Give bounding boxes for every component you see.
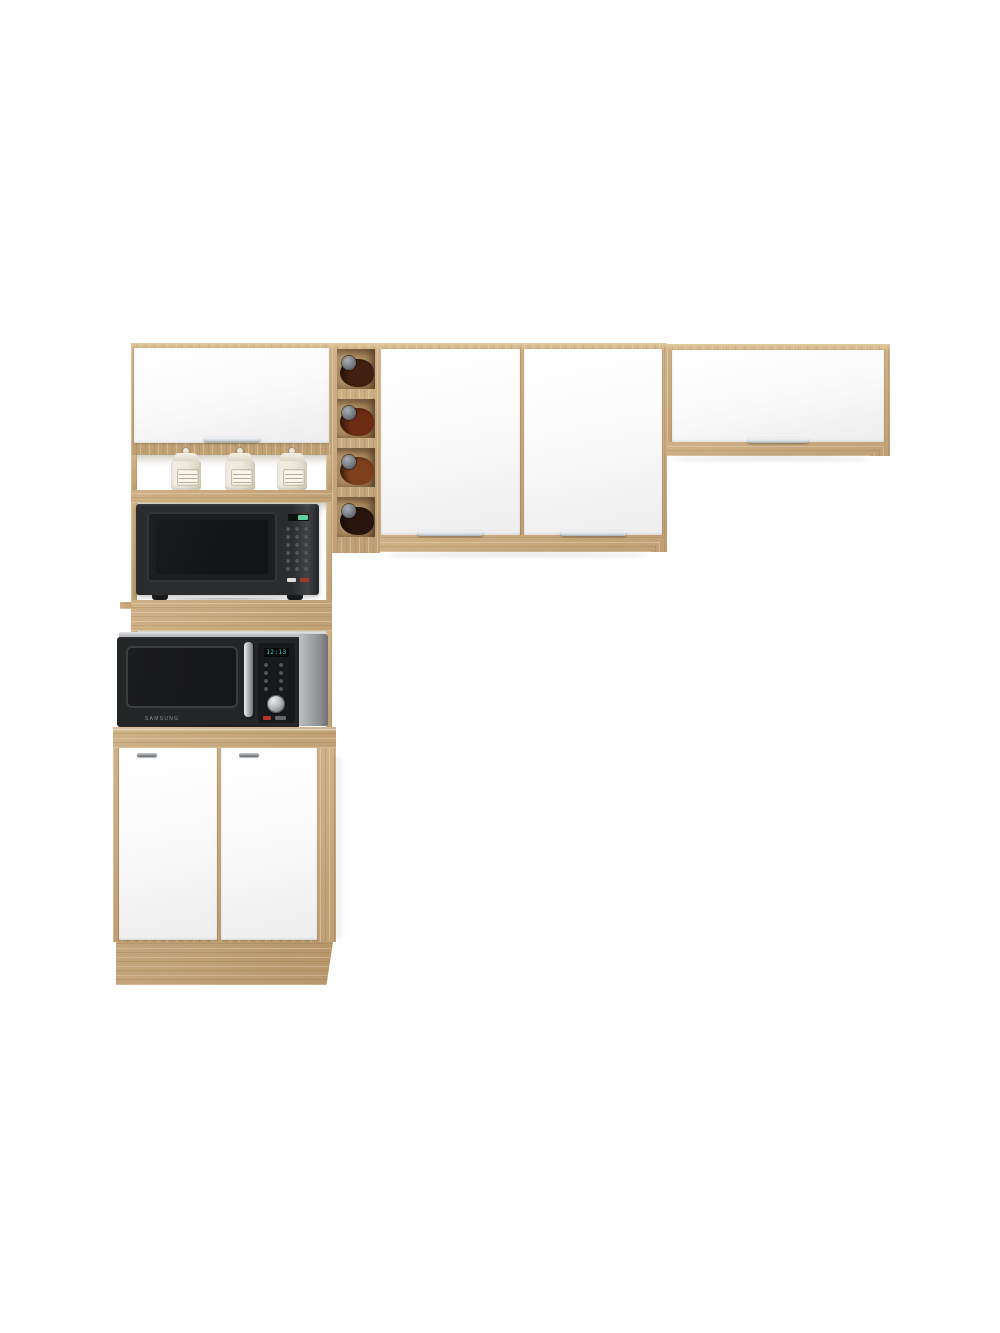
- stop-button: [263, 716, 271, 720]
- center-cabinet-door-right: [524, 349, 662, 535]
- microwave-lower-knob: [267, 695, 285, 713]
- wine-cubby: [337, 399, 375, 438]
- microwave-upper-body: [136, 504, 319, 595]
- bottle-cap: [342, 356, 356, 370]
- base-cabinet-countertop: [113, 727, 336, 748]
- base-cabinet-door-left: [119, 748, 217, 940]
- shelf-side-panel: [131, 455, 137, 490]
- door-handle: [204, 437, 260, 442]
- base-cabinet: [113, 748, 336, 942]
- door-handle: [561, 531, 626, 536]
- microwave-upper-display: [288, 514, 309, 521]
- canister-label: [177, 469, 199, 486]
- microwave-lower-buttons: [262, 662, 291, 692]
- microwave-lower-window: [126, 646, 238, 708]
- base-plinth: [116, 942, 333, 985]
- canister-shelf: [131, 490, 332, 503]
- shelf-band: [131, 600, 332, 631]
- canister: [276, 448, 308, 490]
- cabinet-bottom-panel: [380, 535, 667, 552]
- microwave-upper: [136, 504, 319, 600]
- bottle-cap: [342, 455, 356, 469]
- center-upper-cabinet: [380, 343, 667, 552]
- canister-body: [225, 461, 255, 490]
- base-cabinet-door-right: [221, 748, 317, 940]
- start-button: [275, 716, 286, 720]
- microwave-lower-display: 12:13: [264, 648, 289, 657]
- cabinet-bottom-panel: [667, 442, 890, 456]
- start-button: [287, 578, 296, 582]
- door-handle: [748, 438, 808, 443]
- wine-cubby: [337, 448, 375, 487]
- product-photo: 12:13 SAMSUNG: [0, 0, 1000, 1333]
- microwave-lower: 12:13 SAMSUNG: [117, 632, 328, 727]
- wine-cubby: [337, 497, 375, 537]
- microwave-upper-screen: [156, 520, 268, 574]
- center-cabinet-door-left: [381, 349, 520, 535]
- door-handle: [239, 753, 259, 757]
- bottle-cap: [342, 504, 356, 518]
- microwave-upper-control-panel: [282, 510, 314, 590]
- upper-left-cabinet-door: [134, 348, 329, 443]
- canister-body: [171, 461, 201, 490]
- cabinet-side-shadow: [336, 758, 344, 938]
- canister-label: [283, 469, 305, 486]
- microwave-lower-brand: SAMSUNG: [145, 716, 225, 722]
- upper-left-cabinet: [131, 343, 332, 455]
- canister: [170, 448, 202, 490]
- canister: [224, 448, 256, 490]
- bottle-cap: [342, 406, 356, 420]
- microwave-lower-control-panel: 12:13: [258, 643, 295, 723]
- wine-cubby: [337, 349, 375, 389]
- canister-label: [231, 469, 253, 486]
- canister-body: [277, 461, 307, 490]
- stop-button: [300, 578, 309, 582]
- cabinet-shadow: [673, 456, 869, 463]
- wine-rack: [332, 343, 380, 553]
- right-upper-cabinet: [667, 344, 890, 456]
- cabinet-shadow: [386, 552, 648, 559]
- microwave-lower-side-face: [297, 634, 328, 726]
- microwave-upper-buttons: [285, 526, 312, 574]
- microwave-lower-door: 12:13 SAMSUNG: [117, 637, 299, 727]
- door-handle: [137, 753, 157, 757]
- microwave-upper-window: [147, 512, 277, 582]
- microwave-lower-handle: [244, 642, 253, 717]
- right-cabinet-door: [672, 350, 884, 442]
- door-handle: [418, 531, 483, 536]
